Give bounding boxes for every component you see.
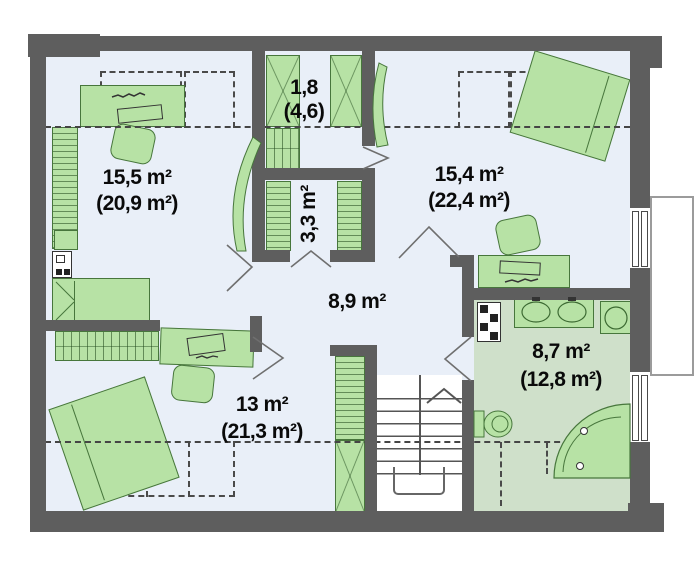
- door-opening: [253, 337, 283, 379]
- room-label-floor: (22,4 m²): [428, 189, 510, 213]
- door-opening: [363, 147, 388, 169]
- room-label-floor: (21,3 m²): [221, 420, 303, 444]
- door-leaf: [233, 137, 261, 251]
- sink-icon: [522, 302, 550, 322]
- stairs-up-arrow: [427, 389, 461, 403]
- room-label-area: 15,5 m²: [103, 166, 172, 190]
- room-label-area: 3,3 m²: [297, 185, 321, 243]
- washer-drum: [605, 307, 627, 329]
- room-label-floor: (12,8 m²): [520, 368, 602, 392]
- toilet-icon: [474, 411, 484, 437]
- bathtub-icon: [554, 404, 630, 478]
- room-label-floor: (4,6): [284, 100, 325, 124]
- room-label-floor: (20,9 m²): [96, 192, 178, 216]
- room-label-area: 13 m²: [236, 393, 288, 417]
- door-leaf: [373, 63, 388, 147]
- plan-detail-overlay: [0, 0, 700, 576]
- room-label-area: 8,9 m²: [328, 290, 386, 314]
- door-opening: [399, 227, 459, 258]
- door-opening: [227, 245, 252, 291]
- sink-icon: [558, 302, 586, 322]
- room-label-area: 15,4 m²: [435, 163, 504, 187]
- room-label-area: 1,8: [290, 76, 318, 100]
- floor-plan: 15,5 m² (20,9 m²) 1,8 (4,6) 3,3 m² 15,4 …: [0, 0, 700, 576]
- door-opening: [291, 251, 331, 267]
- door-opening: [445, 337, 471, 381]
- room-label-area: 8,7 m²: [532, 340, 590, 364]
